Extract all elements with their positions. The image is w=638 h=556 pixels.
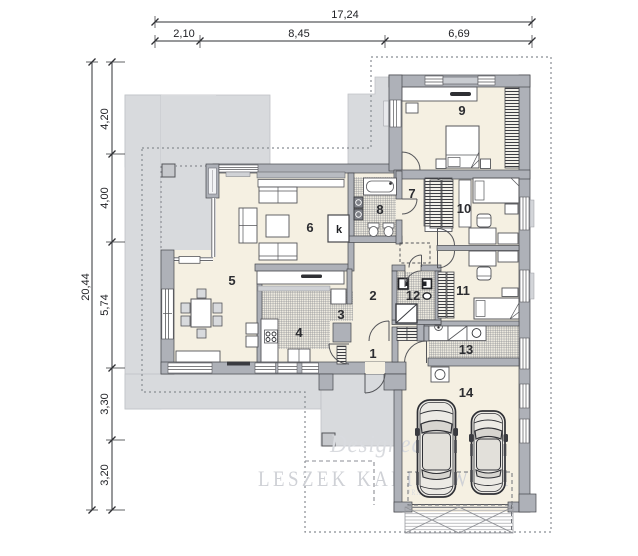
svg-text:13: 13 (459, 342, 473, 357)
svg-text:4,20: 4,20 (99, 108, 111, 129)
svg-text:10: 10 (457, 201, 471, 216)
svg-text:k: k (336, 224, 343, 236)
svg-text:3,20: 3,20 (99, 464, 111, 485)
svg-text:11: 11 (456, 283, 470, 298)
svg-text:9: 9 (458, 103, 465, 118)
svg-text:2,10: 2,10 (173, 28, 194, 40)
svg-text:17,24: 17,24 (331, 9, 359, 21)
svg-text:12: 12 (406, 288, 420, 303)
svg-text:14: 14 (459, 385, 474, 400)
svg-text:2: 2 (369, 288, 376, 303)
svg-text:3,30: 3,30 (99, 393, 111, 414)
svg-text:6: 6 (306, 220, 313, 235)
svg-text:1: 1 (369, 346, 376, 361)
svg-text:7: 7 (408, 186, 415, 201)
svg-text:20,44: 20,44 (80, 273, 92, 301)
svg-text:5: 5 (228, 273, 235, 288)
svg-text:8,45: 8,45 (288, 28, 309, 40)
svg-text:3: 3 (337, 307, 344, 322)
svg-text:4: 4 (295, 325, 303, 340)
svg-text:6,69: 6,69 (448, 28, 469, 40)
svg-text:8: 8 (376, 202, 383, 217)
svg-text:4,00: 4,00 (99, 187, 111, 208)
svg-text:5,74: 5,74 (99, 294, 111, 315)
